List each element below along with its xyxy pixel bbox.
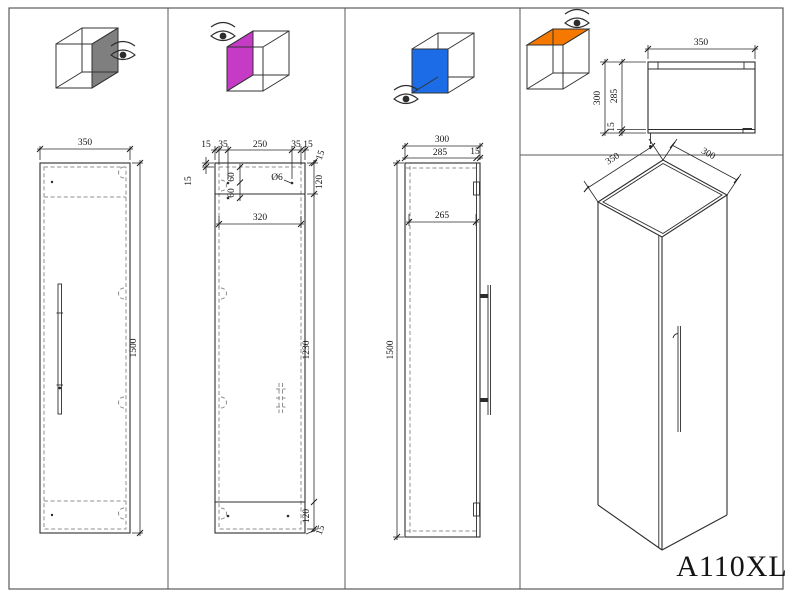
dim-label: 15 — [201, 140, 211, 150]
dim-inner-width: 320 — [216, 213, 304, 228]
dim-label: 60 — [227, 188, 237, 198]
dim-label: 1230 — [302, 340, 312, 359]
hinge-arc — [119, 288, 124, 299]
dim-inner-depth: 265 — [406, 211, 479, 226]
dim-top-right-15: 15 — [309, 149, 328, 166]
dim-label: 15 — [315, 149, 328, 162]
dim-height: 1500 — [386, 160, 404, 540]
panel-front-view: 350 1500 — [37, 28, 143, 536]
dim-hole-rows: 60 60 — [227, 164, 243, 201]
handle-top-view — [649, 133, 652, 148]
dim-mid-height: 1230 — [302, 194, 317, 505]
dim-label: 15 — [184, 176, 194, 186]
projection-cube-left-icon — [227, 31, 289, 91]
drilling-view-drawing: 15 35 250 35 15 15 15 60 — [184, 140, 328, 536]
handle-hidden-lines — [276, 383, 286, 413]
eye-icon — [211, 23, 235, 41]
dim-body-door: 285 15 — [402, 147, 483, 161]
door-handle-iso — [673, 326, 681, 432]
dim-label: 15 — [315, 524, 328, 537]
top-view-drawing: 350 300 285 15 — [593, 38, 758, 148]
dim-label: Ø6 — [271, 173, 283, 183]
dim-label: 120 — [315, 175, 325, 190]
cube-shaded-face — [412, 49, 448, 93]
dim-label: 120 — [302, 509, 312, 524]
projection-cube-front-icon — [56, 28, 118, 88]
dim-label: 285 — [433, 148, 448, 158]
dim-bottom-right-15: 15 — [306, 524, 328, 537]
hinge-arc — [221, 288, 227, 299]
hinge-arc — [119, 508, 124, 519]
dim-label: 300 — [699, 146, 717, 162]
hinge-arc — [221, 180, 227, 191]
dim-hole-diameter: Ø6 — [271, 173, 291, 183]
front-view-drawing: 350 1500 — [37, 138, 143, 536]
dim-label: 35 — [218, 140, 228, 150]
dim-label: 350 — [604, 151, 622, 167]
dim-label: 15 — [470, 147, 480, 157]
dim-label: 285 — [610, 89, 620, 104]
cube-shaded-face — [227, 31, 253, 91]
dim-label: 60 — [227, 172, 237, 182]
dim-width: 350 — [37, 138, 133, 160]
dim-bottom-offset: 120 — [302, 502, 318, 532]
eye-icon — [565, 10, 589, 28]
technical-drawing: 350 1500 — [0, 0, 800, 600]
side-view-drawing: 300 285 15 265 1500 — [386, 135, 491, 540]
dim-label: 1500 — [129, 338, 139, 357]
dim-iso-width: 350 — [584, 139, 663, 202]
iso-cabinet-drawing: 350 300 — [584, 139, 741, 550]
dim-label: 350 — [78, 138, 93, 148]
panel-top-view: 350 300 285 15 — [527, 10, 758, 149]
dim-label: 300 — [593, 91, 603, 106]
hinge-arc — [119, 167, 124, 178]
dim-left-15: 15 — [184, 157, 214, 186]
cube-shaded-face — [92, 28, 118, 88]
panel-drilling-view: 15 35 250 35 15 15 15 60 — [184, 23, 328, 537]
dim-width: 350 — [645, 38, 758, 59]
dim-label: 15 — [303, 140, 313, 150]
dim-label: 265 — [435, 211, 450, 221]
panel-side-view: 300 285 15 265 1500 — [386, 33, 491, 540]
eye-icon — [394, 86, 418, 104]
cube-shaded-face — [527, 29, 589, 45]
sheet-border — [9, 8, 783, 589]
dim-label: 15 — [607, 122, 617, 132]
dim-label: 320 — [253, 213, 268, 223]
dim-depth-chain: 300 285 15 — [593, 59, 646, 136]
dim-label: 350 — [694, 38, 709, 48]
dim-label: 35 — [291, 140, 301, 150]
dim-label: 250 — [253, 140, 268, 150]
projection-cube-side-icon — [412, 33, 474, 93]
projection-cube-top-icon — [527, 29, 589, 89]
dim-label: 1500 — [386, 340, 396, 359]
door-handle — [57, 284, 64, 414]
dim-label: 300 — [435, 135, 450, 145]
panel-iso-view: 350 300 A110XL — [584, 139, 788, 583]
door-handle-side — [480, 285, 491, 415]
dim-height: 1500 — [129, 160, 143, 536]
hinge-arc — [221, 508, 227, 519]
hinge-arc — [221, 397, 227, 408]
hinge-arc — [119, 397, 124, 408]
dim-top-chain: 15 35 250 35 15 — [201, 140, 313, 179]
drawing-sheet: 350 1500 — [0, 0, 800, 600]
model-label: A110XL — [676, 550, 788, 583]
